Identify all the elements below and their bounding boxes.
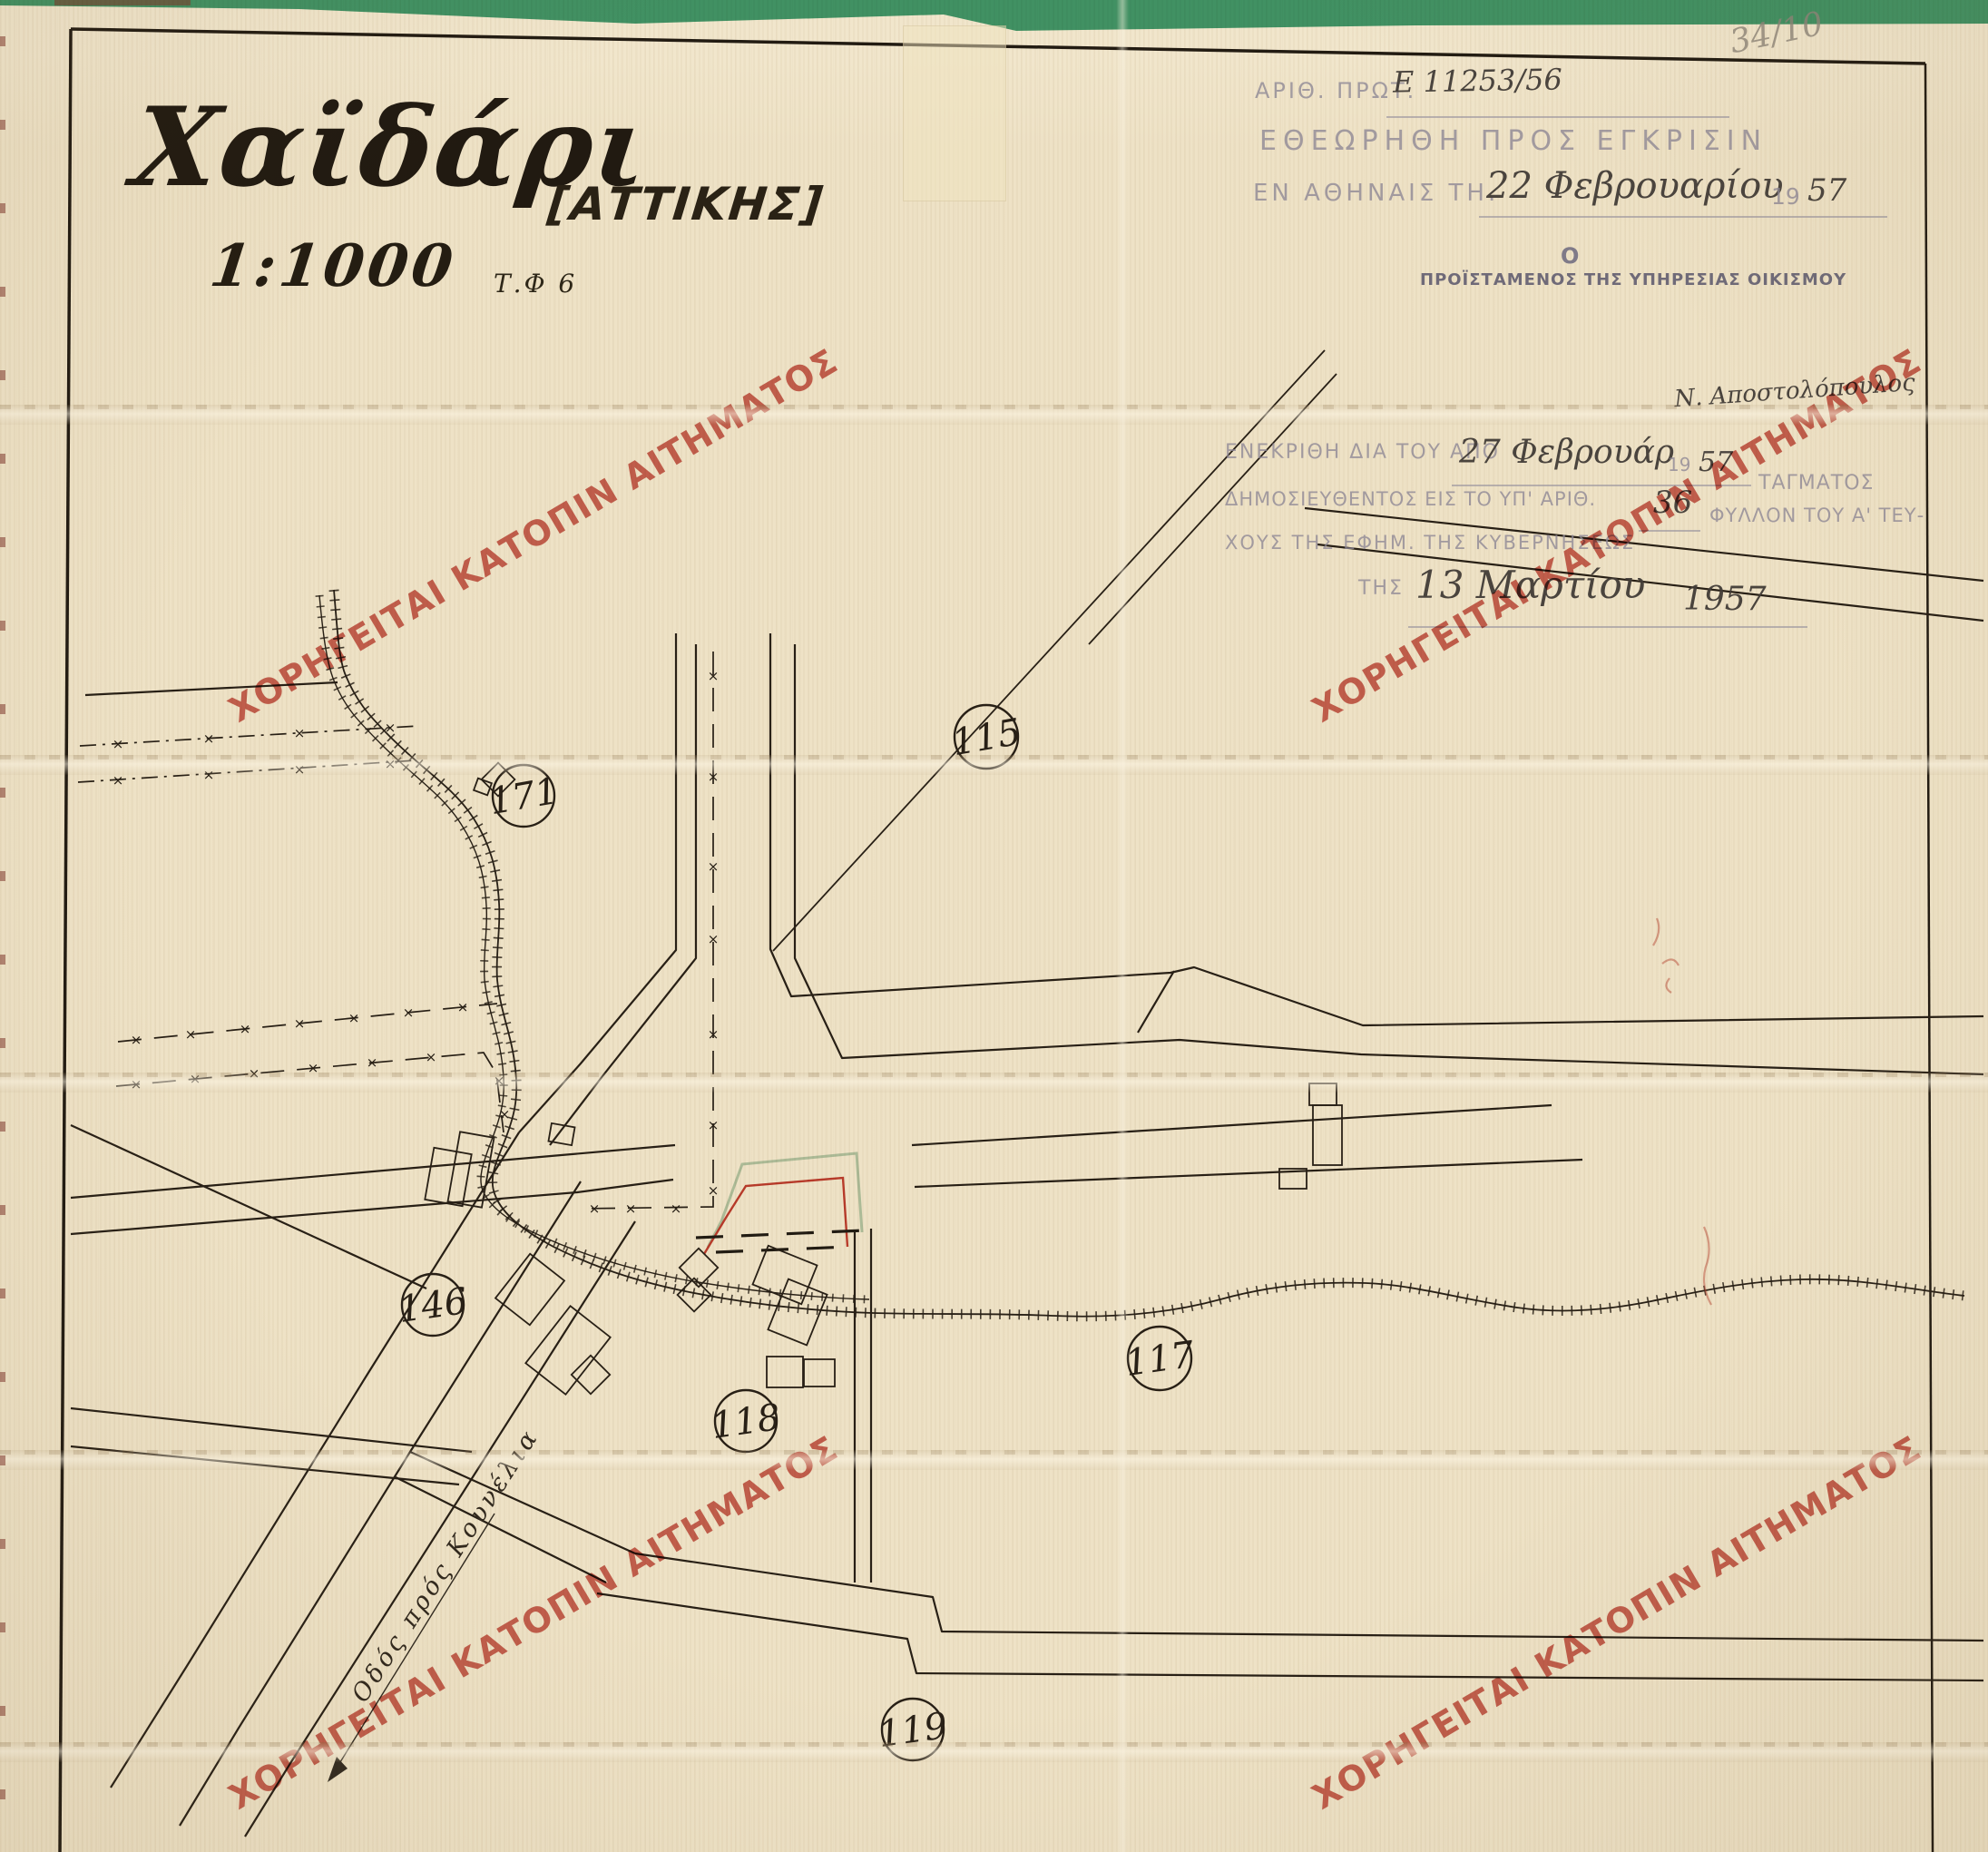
svg-text:×: × [294, 725, 306, 741]
red-parcel-outline [704, 1178, 847, 1254]
red-pen-marks [1653, 918, 1711, 1305]
teal-parcel-outline [708, 1153, 862, 1248]
approval-line4-year: 1957 [1683, 581, 1767, 618]
svg-text:×: × [494, 1073, 505, 1089]
svg-text:×: × [708, 931, 720, 947]
stamp-protocol-value: Ε 11253/56 [1393, 62, 1562, 99]
stamp-officer-title: ΠΡΟΪΣΤΑΜΕΝΟΣ ΤΗΣ ΥΠΗΡΕΣΙΑΣ ΟΙΚΙΣΜΟΥ [1420, 270, 1846, 289]
svg-text:×: × [385, 756, 397, 772]
svg-text:×: × [403, 1004, 415, 1021]
stamp-year-value: 57 [1807, 172, 1846, 209]
road-network [71, 508, 1983, 1837]
svg-text:×: × [708, 1182, 720, 1199]
stream [319, 590, 1964, 1317]
svg-text:×: × [190, 1071, 201, 1087]
dashed-alignment-lines [696, 1230, 864, 1252]
svg-text:×: × [113, 772, 124, 789]
svg-text:×: × [708, 1117, 720, 1133]
approval-line1-tail: ΤΑΓΜΑΤΟΣ [1758, 472, 1874, 495]
svg-text:×: × [294, 1015, 306, 1032]
svg-text:×: × [671, 1200, 682, 1217]
approval-line2-tail: ΦΥΛΛΟΝ ΤΟΥ Α' ΤΕΥ- [1709, 505, 1924, 526]
svg-text:×: × [203, 730, 215, 747]
svg-text:×: × [203, 767, 215, 783]
fence-x-marks: ××× ××× × ××× ××× ×× ××× ××× × ××× ×××× … [113, 668, 720, 1217]
approval-line4-label: ΤΗΣ [1358, 577, 1404, 600]
stamp-place-label: ΕΝ ΑΘΗΝΑΙΣ ΤΗ. [1253, 180, 1499, 207]
building-footprints [425, 763, 1342, 1395]
stamp-date-value: 22 Φεβρουαρίου [1486, 165, 1784, 207]
block-number-146: 146 [396, 1280, 470, 1331]
svg-text:×: × [131, 1032, 142, 1048]
approval-line1-value: 27 Φεβρουάρ [1459, 434, 1674, 471]
svg-text:×: × [367, 1054, 378, 1071]
map-sheet-ref: Τ.Φ 6 [494, 269, 577, 299]
svg-text:×: × [625, 1200, 637, 1217]
svg-text:×: × [294, 761, 306, 778]
svg-text:×: × [708, 1026, 720, 1043]
svg-text:×: × [308, 1060, 319, 1076]
svg-text:×: × [240, 1021, 251, 1037]
svg-text:×: × [708, 858, 720, 875]
block-number-119: 119 [876, 1705, 950, 1756]
scanned-map-sheet: ××× ××× × ××× ××× ×× ××× ××× × ××× ×××× … [0, 0, 1988, 1852]
stamp-officer-article: Ο [1561, 243, 1579, 269]
svg-text:×: × [589, 1200, 601, 1217]
map-scale: 1:1000 [206, 232, 459, 300]
tape-mark [903, 25, 1006, 201]
map-title-region: [ΑΤΤΙΚΗΣ] [545, 178, 827, 230]
svg-text:×: × [348, 1010, 360, 1026]
edge-red-mark [54, 0, 191, 5]
block-number-118: 118 [709, 1396, 783, 1447]
svg-text:×: × [708, 668, 720, 684]
stamp-date-underline [1479, 216, 1887, 218]
svg-text:×: × [426, 1049, 437, 1065]
stamp-year-printed: 19 [1771, 183, 1800, 210]
svg-text:×: × [499, 1106, 511, 1122]
stamp-protocol-underline [1386, 116, 1729, 118]
svg-text:×: × [113, 736, 124, 752]
svg-text:×: × [185, 1026, 197, 1043]
svg-text:×: × [708, 769, 720, 785]
approval-line2-label: ΔΗΜΟΣΙΕΥΘΕΝΤΟΣ ΕΙΣ ΤΟ ΥΠ' ΑΡΙΘ. [1225, 488, 1596, 510]
svg-text:×: × [457, 999, 469, 1015]
svg-text:×: × [249, 1065, 260, 1082]
stamp-heading: ΕΘΕΩΡΗΘΗ ΠΡΟΣ ΕΓΚΡΙΣΙΝ [1259, 125, 1768, 157]
svg-text:×: × [385, 720, 397, 736]
svg-text:×: × [131, 1076, 142, 1093]
